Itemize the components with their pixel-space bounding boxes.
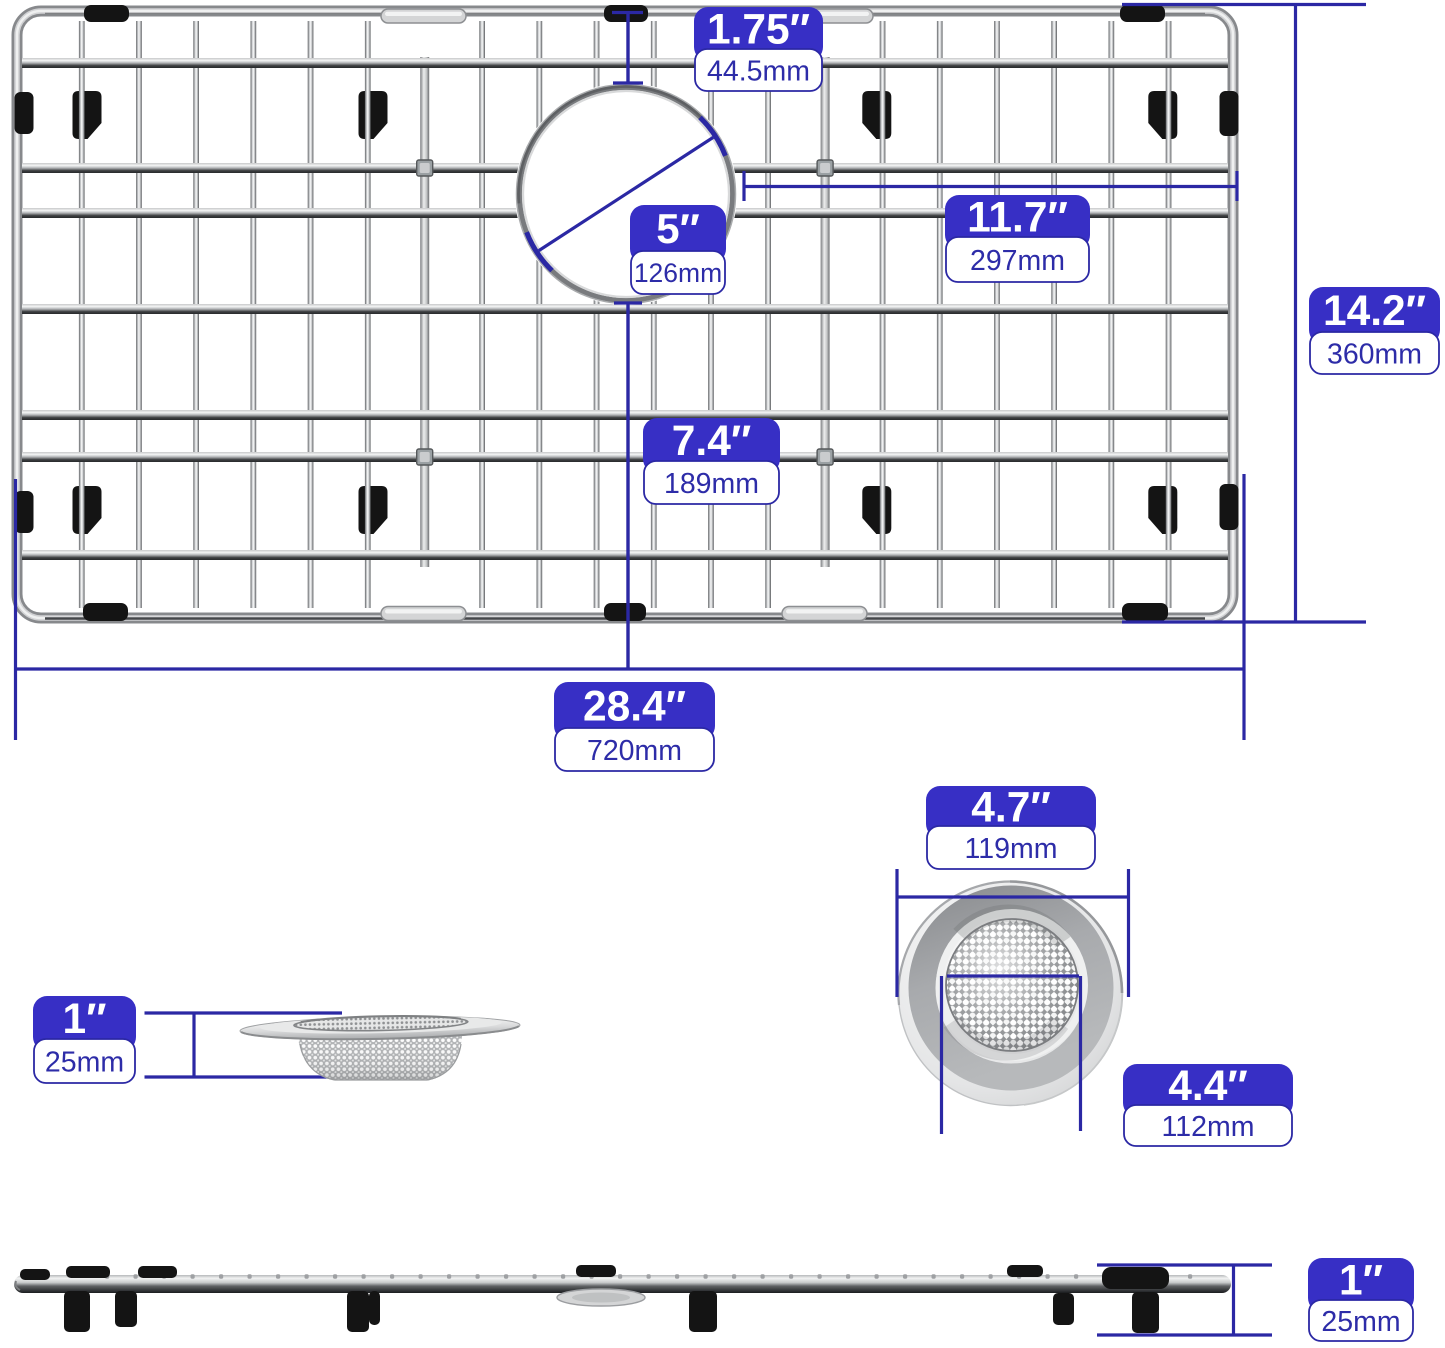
svg-text:126mm: 126mm: [634, 258, 722, 288]
svg-text:119mm: 119mm: [965, 833, 1058, 865]
svg-text:7.4″: 7.4″: [672, 418, 751, 465]
svg-text:44.5mm: 44.5mm: [707, 55, 810, 87]
svg-text:189mm: 189mm: [664, 468, 759, 500]
svg-text:28.4″: 28.4″: [583, 683, 686, 730]
svg-text:4.4″: 4.4″: [1168, 1063, 1247, 1110]
svg-text:11.7″: 11.7″: [967, 194, 1068, 241]
svg-text:1″: 1″: [1339, 1257, 1383, 1304]
svg-text:360mm: 360mm: [1327, 338, 1422, 370]
svg-text:297mm: 297mm: [970, 245, 1065, 277]
svg-text:1.75″: 1.75″: [707, 6, 810, 53]
svg-text:112mm: 112mm: [1162, 1111, 1255, 1143]
svg-text:25mm: 25mm: [1321, 1306, 1400, 1338]
svg-text:5″: 5″: [656, 205, 699, 252]
svg-text:25mm: 25mm: [45, 1046, 124, 1078]
svg-text:14.2″: 14.2″: [1323, 288, 1426, 335]
svg-text:1″: 1″: [63, 996, 107, 1043]
svg-text:720mm: 720mm: [587, 735, 682, 767]
svg-text:4.7″: 4.7″: [971, 784, 1050, 831]
